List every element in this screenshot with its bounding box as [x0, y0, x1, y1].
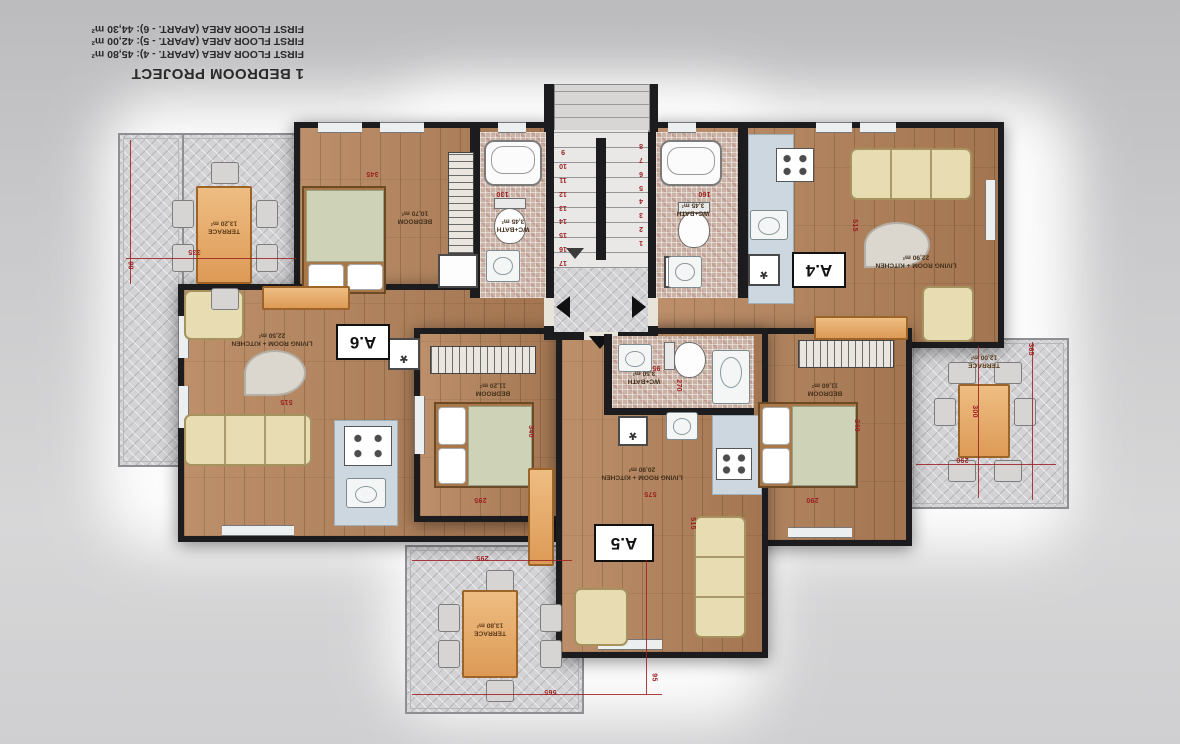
- stair-step-number: 7: [634, 156, 648, 163]
- dimension-label: 130: [496, 190, 509, 197]
- window: [222, 525, 294, 536]
- room-area: 12,00 m²: [954, 352, 1014, 360]
- pillow-icon: [762, 448, 790, 484]
- dimension-label: 365: [1027, 343, 1034, 356]
- dimension-label: 95: [652, 364, 660, 371]
- dimension-label: 515: [851, 219, 858, 232]
- wardrobe-a6-icon: [448, 152, 474, 254]
- room-area: 22,50 m²: [222, 330, 322, 338]
- chair-icon: [438, 604, 460, 632]
- room-name: BEDROOM: [790, 388, 860, 396]
- apartment-label-a6: A.6: [336, 324, 390, 360]
- chair-icon: [486, 570, 514, 592]
- window: [414, 396, 425, 454]
- washing-machine-a6-icon: *: [388, 338, 420, 370]
- washing-machine-a4-icon: *: [748, 254, 780, 286]
- dimension-line: [412, 560, 572, 561]
- room-label-a4-living: LIVING ROOM + KITCHEN 22,90 m²: [866, 252, 966, 268]
- room-area: 11,20 m²: [458, 380, 528, 388]
- window: [816, 122, 852, 133]
- room-name: LIVING ROOM + KITCHEN: [866, 260, 966, 268]
- stair-step-number: 13: [556, 204, 570, 211]
- dimension-label: 300: [971, 405, 978, 418]
- dining-table-a6-icon: [196, 186, 252, 284]
- washer-glyph: *: [760, 259, 768, 282]
- apartment-label-a4: A.4: [792, 252, 846, 288]
- dimension-label: 160: [698, 190, 711, 197]
- bathtub-a4-icon: [660, 140, 722, 186]
- dimension-line: [916, 464, 1056, 465]
- apartment-label-text: A.4: [806, 260, 832, 280]
- stair-step-number: 11: [556, 176, 570, 183]
- wardrobe-a5-icon: [430, 346, 536, 374]
- wardrobe-a4-icon: [798, 340, 894, 368]
- room-label-a6-bedroom: BEDROOM 10,70 m²: [380, 208, 450, 224]
- dimension-label: 345: [366, 170, 379, 177]
- window: [318, 122, 362, 133]
- room-name: LIVING ROOM + KITCHEN: [222, 338, 322, 346]
- stair-step-number: 5: [634, 184, 648, 191]
- bed-a5-blanket: [468, 406, 532, 486]
- dimension-label: 515: [689, 517, 696, 530]
- room-name: BEDROOM: [380, 216, 450, 224]
- dimension-line: [646, 560, 647, 694]
- washing-machine-a5-icon: *: [618, 416, 648, 446]
- terrace-a6-wrap-floor: [118, 133, 184, 467]
- stair-divider-wall: [596, 138, 606, 260]
- dimension-label: 340: [853, 419, 860, 432]
- room-name: WC+BATH: [614, 376, 674, 384]
- pillow-icon: [438, 448, 466, 484]
- room-area: 13,80 m²: [462, 620, 518, 628]
- chair-icon: [172, 200, 194, 228]
- sofa-a4-icon: [850, 148, 972, 200]
- stair-step-number: 4: [634, 197, 648, 204]
- sofa-a6-icon: [184, 414, 312, 466]
- apartment-label-text: A.5: [611, 533, 637, 553]
- room-name: LIVING ROOM + KITCHEN: [592, 472, 692, 480]
- utility-box-left-icon: [438, 254, 478, 288]
- kitchen-sink-a6-icon: [346, 478, 386, 508]
- kitchen-sink-a4-icon: [750, 210, 788, 240]
- dimension-label: 515: [280, 398, 293, 405]
- chair-icon: [256, 200, 278, 228]
- room-name: BEDROOM: [458, 388, 528, 396]
- area-line-apart5: FIRST FLOOR AREA (APART. - 5): 42,00 m²: [8, 35, 304, 48]
- dimension-line: [978, 346, 979, 498]
- toilet-a5-icon: [674, 342, 706, 378]
- armchair-a5-icon: [574, 588, 628, 646]
- window: [668, 122, 696, 133]
- dimension-label: 340: [527, 425, 534, 438]
- stair-step-number: 8: [634, 142, 648, 149]
- stair-step-number: 1: [634, 239, 648, 246]
- dimension-line: [412, 694, 662, 695]
- chair-icon: [540, 604, 562, 632]
- dimension-label: 270: [675, 379, 682, 392]
- toilet-a4-icon: [678, 212, 710, 248]
- apartment-label-text: A.6: [350, 332, 376, 352]
- pillow-icon: [438, 407, 466, 445]
- stair-step-number: 15: [556, 231, 570, 238]
- stair-step-number: 16: [556, 245, 570, 252]
- room-label-a6-terrace: TERRACE 13,20 m²: [196, 218, 252, 234]
- window: [788, 527, 852, 538]
- room-area: 20,90 m²: [592, 464, 692, 472]
- room-area: 22,90 m²: [866, 252, 966, 260]
- chair-icon: [934, 398, 956, 426]
- room-name: WC+BATH: [482, 224, 544, 232]
- stove-a6-icon: [344, 426, 392, 466]
- room-label-a4-terrace: TERRACE 12,00 m²: [954, 352, 1014, 368]
- stair-step-number: 14: [556, 217, 570, 224]
- dimension-line: [1032, 342, 1033, 500]
- room-label-a4-bath: WC+BATH 3,45 m²: [662, 200, 724, 216]
- dimension-label: 90: [127, 261, 134, 269]
- hall-arrow-left-icon: [556, 296, 570, 318]
- room-name: TERRACE: [462, 628, 518, 636]
- floor-plan-photo: 9 10 11 12 13 14 15 16 17 8 7 6 5 4 3 2 …: [0, 0, 1180, 744]
- stair-step-number: 17: [556, 259, 570, 266]
- bathroom-a4-wall: [738, 128, 748, 298]
- bed-a4-blanket: [792, 406, 856, 486]
- room-label-a5-bedroom: BEDROOM 11,20 m²: [458, 380, 528, 396]
- room-label-a6-bath: WC+BATH 3,45 m²: [482, 216, 544, 232]
- room-label-a5-terrace: TERRACE 13,80 m²: [462, 620, 518, 636]
- bed-a6-blanket: [306, 190, 384, 262]
- stove-a5-icon: [716, 448, 752, 480]
- apartment-label-a5: A.5: [594, 524, 654, 562]
- stair-numbers-right: 8 7 6 5 4 3 2 1: [634, 142, 648, 246]
- dimension-line: [126, 258, 296, 259]
- dimension-label: 95: [651, 673, 658, 681]
- stair-numbers-left: 9 10 11 12 13 14 15 16 17: [556, 148, 570, 266]
- room-area: 10,70 m²: [380, 208, 450, 216]
- chair-icon: [211, 162, 239, 184]
- window: [498, 122, 526, 133]
- door-a4-entry: [648, 298, 658, 326]
- bathroom-a5-wall-left: [604, 334, 612, 412]
- chair-icon: [540, 640, 562, 668]
- room-label-a4-bedroom: BEDROOM 11,60 m²: [790, 380, 860, 396]
- entry-steps: [554, 84, 650, 132]
- area-line-apart6: FIRST FLOOR AREA (APART. - 6): 44,30 m²: [8, 22, 304, 35]
- room-area: 13,20 m²: [196, 218, 252, 226]
- stair-step-number: 12: [556, 190, 570, 197]
- stove-a4-icon: [776, 148, 814, 182]
- pillow-icon: [762, 407, 790, 445]
- window: [985, 180, 996, 240]
- washer-glyph: *: [629, 420, 637, 443]
- chair-icon: [438, 640, 460, 668]
- dimension-label: 335: [188, 248, 201, 255]
- stair-step-number: 10: [556, 162, 570, 169]
- kitchen-sink-a5-icon: [666, 412, 698, 440]
- room-name: TERRACE: [954, 360, 1014, 368]
- project-title: 1 BEDROOM PROJECT: [8, 65, 304, 82]
- dimension-label: 290: [956, 456, 969, 463]
- room-area: 3,45 m²: [482, 216, 544, 224]
- stair-step-number: 9: [556, 148, 570, 155]
- chair-icon: [211, 288, 239, 310]
- pillow-icon: [347, 264, 383, 290]
- room-area: 3,45 m²: [662, 200, 724, 208]
- dimension-label: 295: [476, 554, 489, 561]
- dining-table-a4-icon: [958, 384, 1010, 458]
- title-block: 1 BEDROOM PROJECT FIRST FLOOR AREA (APAR…: [8, 4, 304, 82]
- hall-arrow-right-icon: [632, 296, 646, 318]
- stair-step-number: 2: [634, 225, 648, 232]
- room-area: 3,50 m²: [614, 368, 674, 376]
- chair-icon: [486, 680, 514, 702]
- tv-unit-a4-icon: [814, 316, 908, 340]
- shower-a5-icon: [712, 350, 750, 404]
- stair-step-number: 3: [634, 211, 648, 218]
- dimension-label: 565: [544, 688, 557, 695]
- dimension-label: 290: [806, 496, 819, 503]
- room-name: TERRACE: [196, 226, 252, 234]
- room-label-a5-living: LIVING ROOM + KITCHEN 20,90 m²: [592, 464, 692, 480]
- dimension-label: 295: [474, 496, 487, 503]
- room-area: 11,60 m²: [790, 380, 860, 388]
- tv-unit-a6-icon: [262, 286, 350, 310]
- sofa-a5-icon: [694, 516, 746, 638]
- window: [860, 122, 896, 133]
- area-line-apart4: FIRST FLOOR AREA (APART. - 4): 45,80 m²: [8, 47, 304, 60]
- dimension-label: 575: [644, 490, 657, 497]
- window: [380, 122, 424, 133]
- washer-glyph: *: [400, 343, 408, 366]
- room-name: WC+BATH: [662, 208, 724, 216]
- basin-a4-icon: [668, 256, 702, 288]
- door-a6-entry: [544, 298, 554, 326]
- bathtub-a6-icon: [484, 140, 542, 186]
- armchair-a4-icon: [922, 286, 974, 342]
- room-label-a6-living: LIVING ROOM + KITCHEN 22,50 m²: [222, 330, 322, 346]
- rug-a6-icon: [244, 350, 306, 396]
- basin-a6-icon: [486, 250, 520, 282]
- room-label-a5-bath: WC+BATH 3,50 m²: [614, 368, 674, 384]
- stair-step-number: 6: [634, 170, 648, 177]
- tv-unit-a5-icon: [528, 468, 554, 566]
